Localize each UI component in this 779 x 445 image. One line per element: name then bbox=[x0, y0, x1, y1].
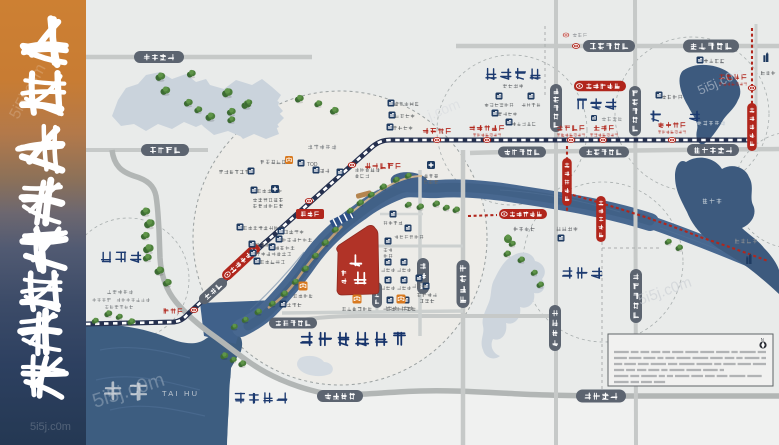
svg-text:TAI HU: TAI HU bbox=[162, 389, 199, 398]
svg-text:N: N bbox=[761, 337, 764, 342]
svg-text:5i5j.c0m: 5i5j.c0m bbox=[30, 421, 71, 433]
